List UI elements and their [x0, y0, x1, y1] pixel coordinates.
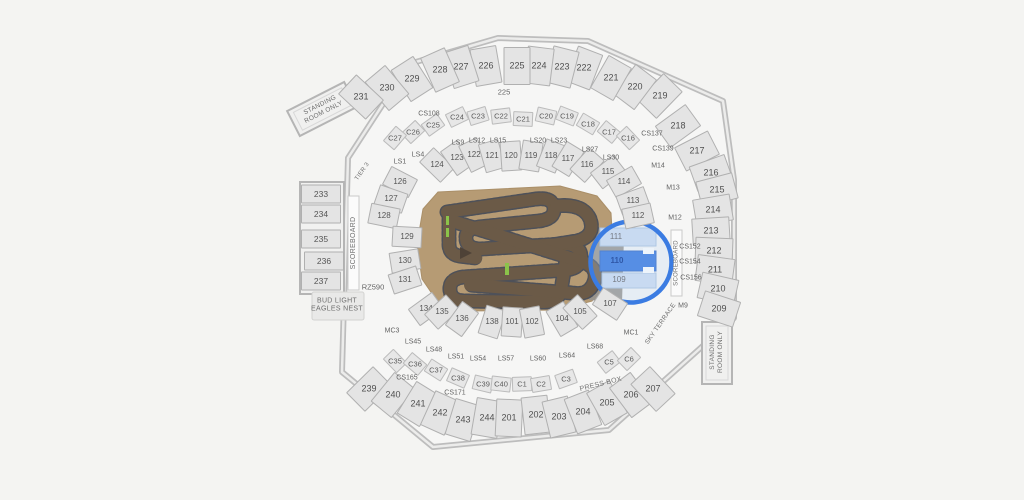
eagles-nest-label: BUD LIGHT EAGLES NEST	[311, 298, 363, 315]
standing-room-right-label: STANDING ROOM ONLY	[709, 331, 725, 373]
sky-terrace-label: SKY TERRACE	[644, 302, 678, 347]
scoreboard-right-label: SCOREBOARD	[673, 240, 680, 286]
press-box-label: PRESS BOX	[579, 376, 623, 395]
annotation-layer: STANDING ROOM ONLYSTANDING ROOM ONLYSCOR…	[0, 0, 1024, 500]
standing-room-left-label: STANDING ROOM ONLY	[300, 93, 344, 126]
scoreboard-left-label: SCOREBOARD	[350, 217, 358, 270]
tier-3-label: TIER 3	[354, 162, 372, 183]
stadium-seat-map: 2192202212222232242252262272282292302312…	[0, 0, 1024, 500]
